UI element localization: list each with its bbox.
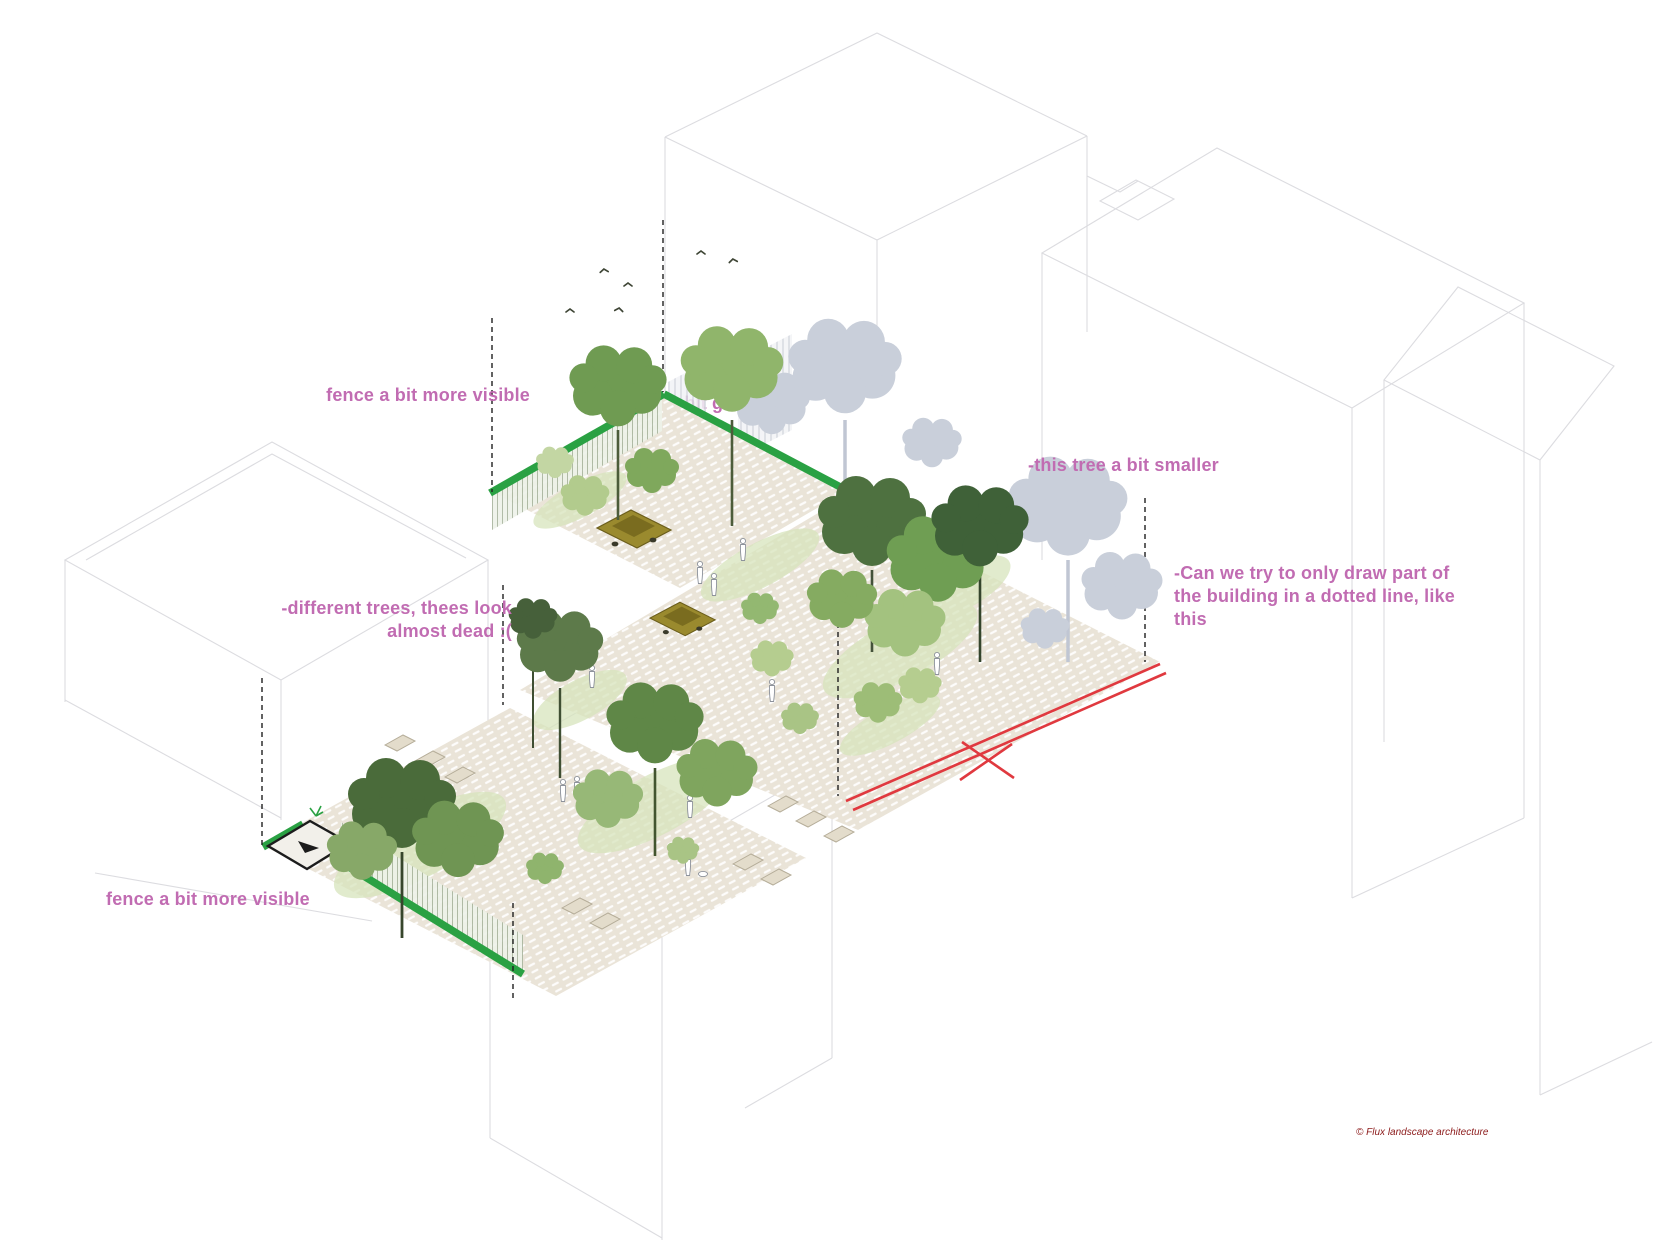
birds [566, 251, 737, 312]
annotation-tree-smaller: -this tree a bit smaller [1028, 454, 1219, 477]
annotation-fence-top: fence a bit more visible [270, 384, 530, 407]
copyright-credit: © Flux landscape architecture [1356, 1127, 1488, 1138]
review-board: fence a bit more visible -bit green -thi… [0, 0, 1654, 1240]
building-far-right [1384, 287, 1652, 1095]
annotation-dotted-building: -Can we try to only draw part of the bui… [1174, 562, 1494, 631]
annotation-fence-bottom: fence a bit more visible [106, 888, 310, 911]
annotation-different-trees: -different trees, thees look almost dead… [212, 597, 512, 643]
dog-figure [699, 871, 708, 876]
